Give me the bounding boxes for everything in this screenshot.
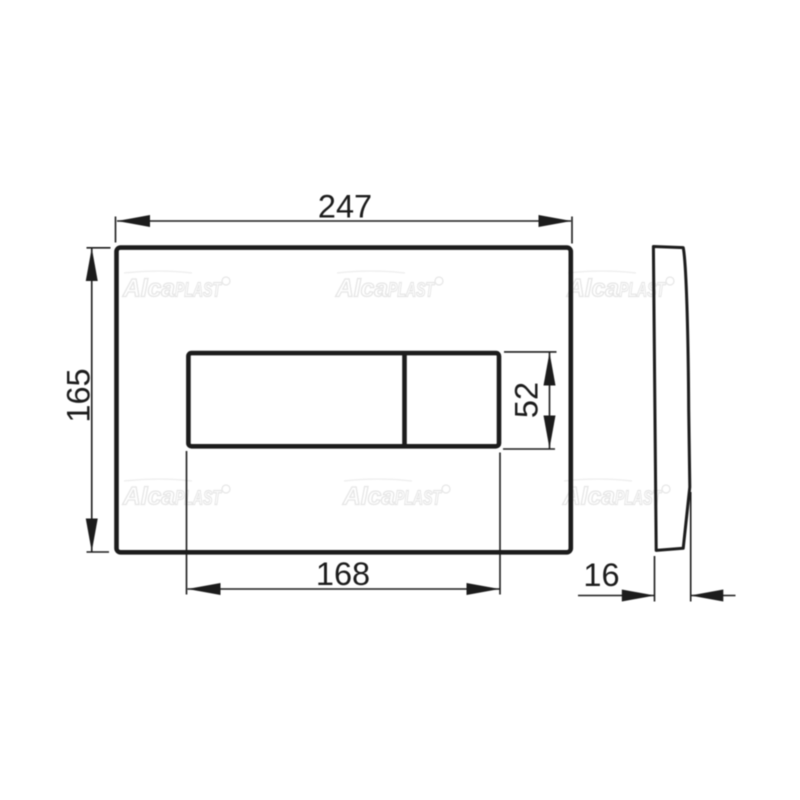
svg-text:52: 52 xyxy=(509,382,545,418)
svg-text:168: 168 xyxy=(316,556,370,592)
svg-text:16: 16 xyxy=(583,557,619,593)
svg-text:247: 247 xyxy=(318,189,372,225)
svg-text:165: 165 xyxy=(61,368,97,422)
